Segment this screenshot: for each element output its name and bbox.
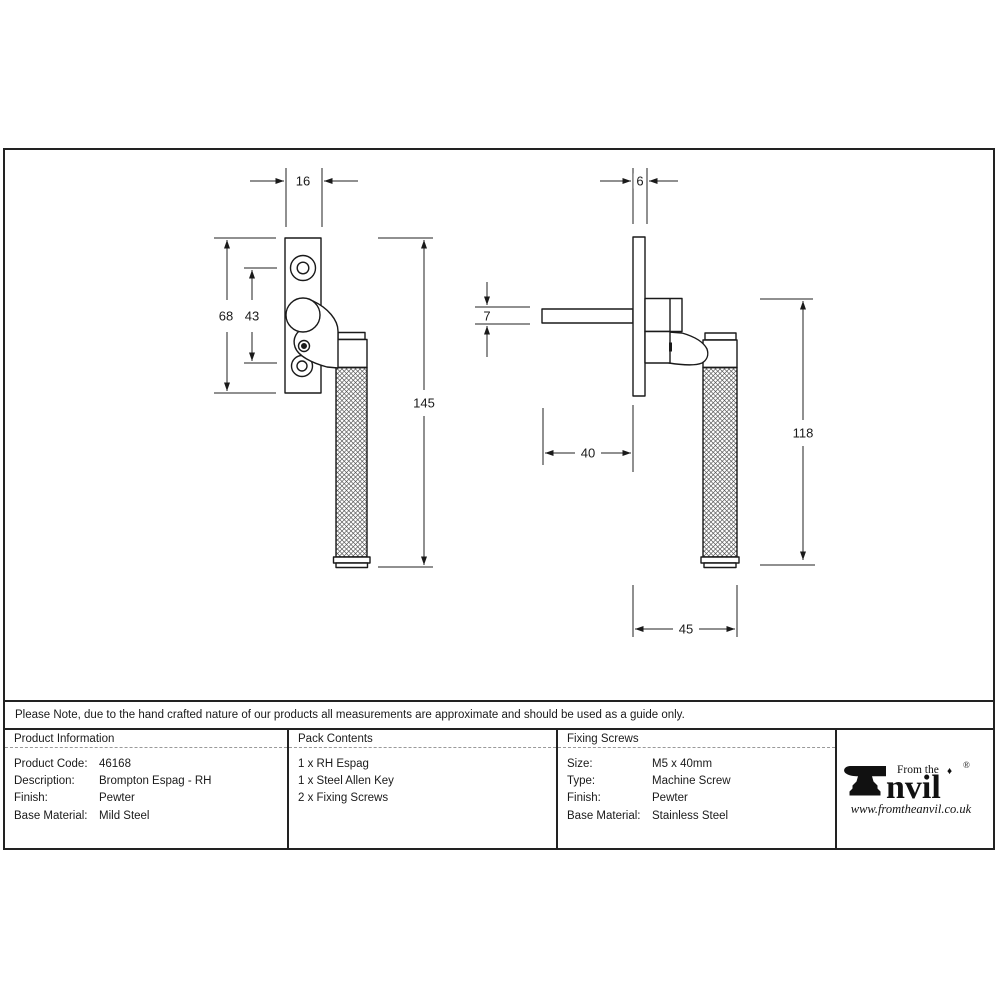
dim-plate-thickness: 6	[633, 174, 646, 189]
technical-drawing	[0, 0, 1000, 1000]
grip-collar	[336, 340, 367, 368]
grip-end-cap	[334, 557, 371, 563]
spindle	[542, 309, 633, 323]
dim-plate-height: 68	[216, 309, 236, 324]
mechanism-block	[645, 299, 682, 332]
handle-boss	[286, 298, 320, 332]
dim-plate-width: 16	[293, 174, 313, 189]
dim-spindle-length: 40	[578, 446, 598, 461]
dim-handle-drop: 118	[790, 426, 817, 441]
grip-top-cap	[338, 333, 365, 340]
dim-hole-spacing: 43	[242, 309, 262, 324]
spec-sheet-page: { "note": "Please Note, due to the hand …	[0, 0, 1000, 1000]
front-view	[285, 238, 370, 568]
grip-top-cap	[705, 333, 736, 340]
dim-spindle-section: 7	[480, 309, 493, 324]
knurled-grip	[703, 368, 737, 558]
knurled-grip	[336, 368, 367, 558]
side-view	[542, 237, 739, 568]
handle-neck	[669, 332, 708, 365]
dim-projection: 45	[676, 622, 696, 637]
backplate-edge	[633, 237, 645, 396]
grip-end-cap	[701, 557, 739, 563]
dim-overall-length: 145	[410, 396, 438, 411]
